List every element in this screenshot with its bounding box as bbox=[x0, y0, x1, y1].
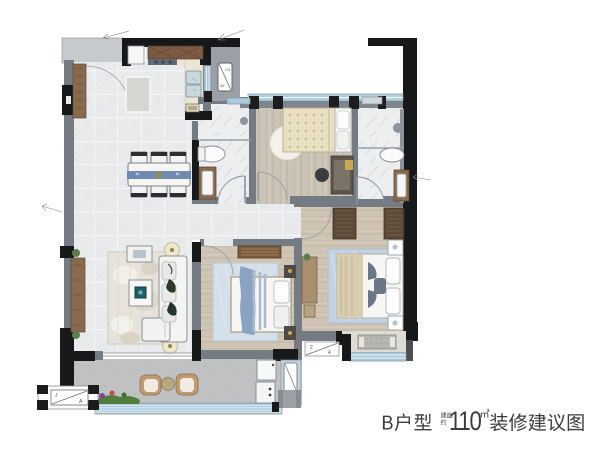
svg-text:110: 110 bbox=[449, 407, 481, 437]
svg-text:4: 4 bbox=[328, 350, 331, 356]
svg-text:2#: 2# bbox=[220, 83, 225, 88]
svg-text:2: 2 bbox=[310, 345, 313, 351]
svg-text:C3: C3 bbox=[225, 67, 231, 72]
